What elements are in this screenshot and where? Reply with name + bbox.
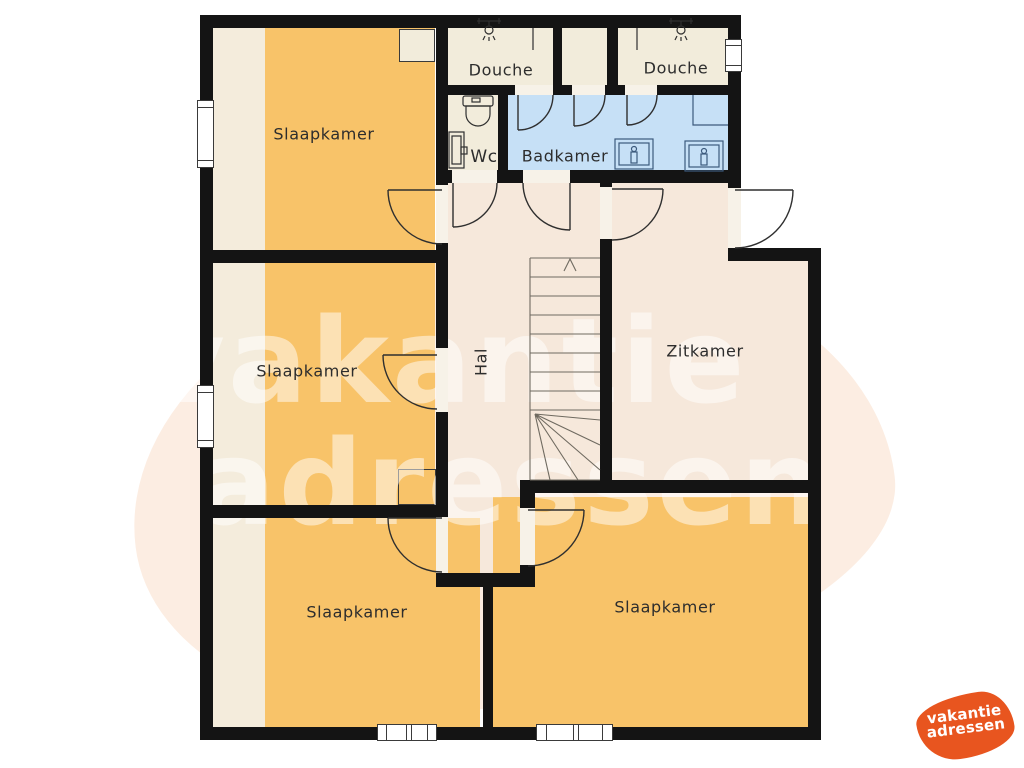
wall-wc-bathroom [498,95,508,170]
wall-hall-left-a [436,28,448,185]
room-bedroom-mid-left-strip [213,263,265,505]
door-gap-closet-mid [572,85,605,95]
wall-bedroom4-left-a [520,493,535,508]
wall-bedroom1-bedroom2 [200,250,448,263]
label-bedroom-mid-left: Slaapkamer [256,362,357,381]
room-closet-middle [562,28,607,85]
door-gap-bedroom2 [436,348,448,412]
door-gap-bedroom1 [436,185,448,243]
wall-shower-band-a [448,85,515,95]
wall-closet-shower2 [607,28,618,85]
wall-bedroom3-bedroom4 [483,587,493,727]
wall-hall-top-c [570,170,728,183]
door-gap-shower1 [515,85,553,95]
door-gap-bathroom-hall [523,170,570,183]
door-gap-living [600,187,612,239]
window-bedroom2-left [197,385,214,448]
window-bedroom1-left [197,100,214,168]
label-bathroom: Badkamer [522,147,609,166]
window-bedroom4-bottom [536,724,613,741]
room-hall-upper [448,183,600,480]
label-toilet: Wc [470,147,497,167]
door-gap-wc [452,170,497,183]
room-living-main [612,248,808,480]
wall-shower-band-c [605,85,625,95]
wall-outer-right-lower [808,248,821,740]
wall-hall-bottom [436,573,535,587]
wall-living-bedroom4 [520,480,808,493]
floorplan-canvas: vakantie adressen [0,0,1024,768]
wall-hall-living-b [600,239,612,480]
window-bedroom3-bottom [377,724,437,741]
label-bedroom-bottom-right: Slaapkamer [614,598,715,617]
wall-hall-top-b [497,170,523,183]
wall-outer-top [200,15,741,28]
door-gap-bedroom4 [520,508,535,565]
door-gap-entrance [728,188,741,248]
label-bedroom-top-left: Slaapkamer [273,125,374,144]
label-shower-right: Douche [644,59,709,78]
wall-shower-band-d [657,85,728,95]
door-gap-bedroom3 [436,517,448,573]
closet-mid-left-bedroom [398,469,436,505]
door-gap-shower2 [625,85,657,95]
label-shower-left: Douche [469,61,534,80]
room-bedroom-top-left-strip [213,28,265,250]
label-bedroom-bottom-left: Slaapkamer [306,603,407,622]
vakantieadressen-logo: vakantie adressen [915,691,1015,761]
wall-hall-left-b [436,243,448,348]
wall-hall-left-c [436,412,448,517]
wall-bedroom2-bedroom3 [200,505,448,518]
label-living-room: Zitkamer [666,342,743,361]
closet-top-left-bedroom [399,29,435,62]
wall-shower1-closet [553,28,562,85]
room-living-upper [612,183,728,248]
label-hall: Hal [472,348,491,376]
door-entrance [735,190,793,248]
wall-outer-bottom [200,727,821,740]
wall-shower-band-b [553,85,572,95]
window-shower2-right [725,39,742,72]
room-bedroom-bottom-left-strip [213,518,265,727]
